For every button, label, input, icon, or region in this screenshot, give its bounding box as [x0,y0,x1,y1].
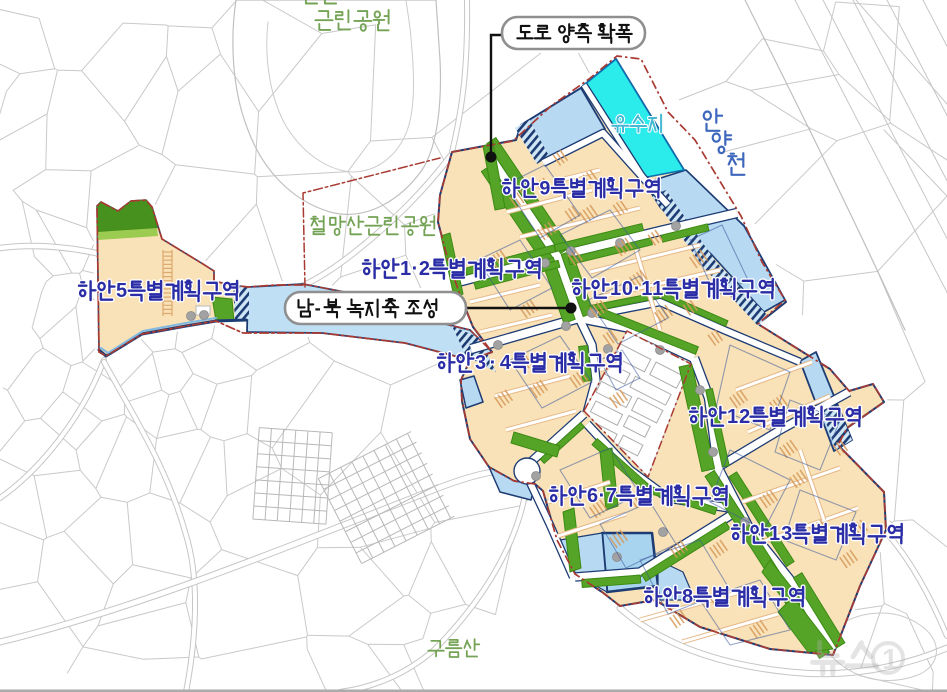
svg-text:9: 9 [539,177,550,199]
svg-text:1: 1 [882,644,898,676]
svg-text:-: - [315,297,321,318]
svg-text:8: 8 [682,586,693,608]
svg-text:6·7: 6·7 [587,485,617,507]
svg-text:3·4: 3·4 [475,352,512,374]
svg-text:10·11: 10·11 [610,278,663,300]
svg-text:5: 5 [116,280,127,302]
svg-text:1·2: 1·2 [400,258,430,280]
svg-text:12: 12 [727,406,750,428]
svg-text:13: 13 [769,523,792,545]
